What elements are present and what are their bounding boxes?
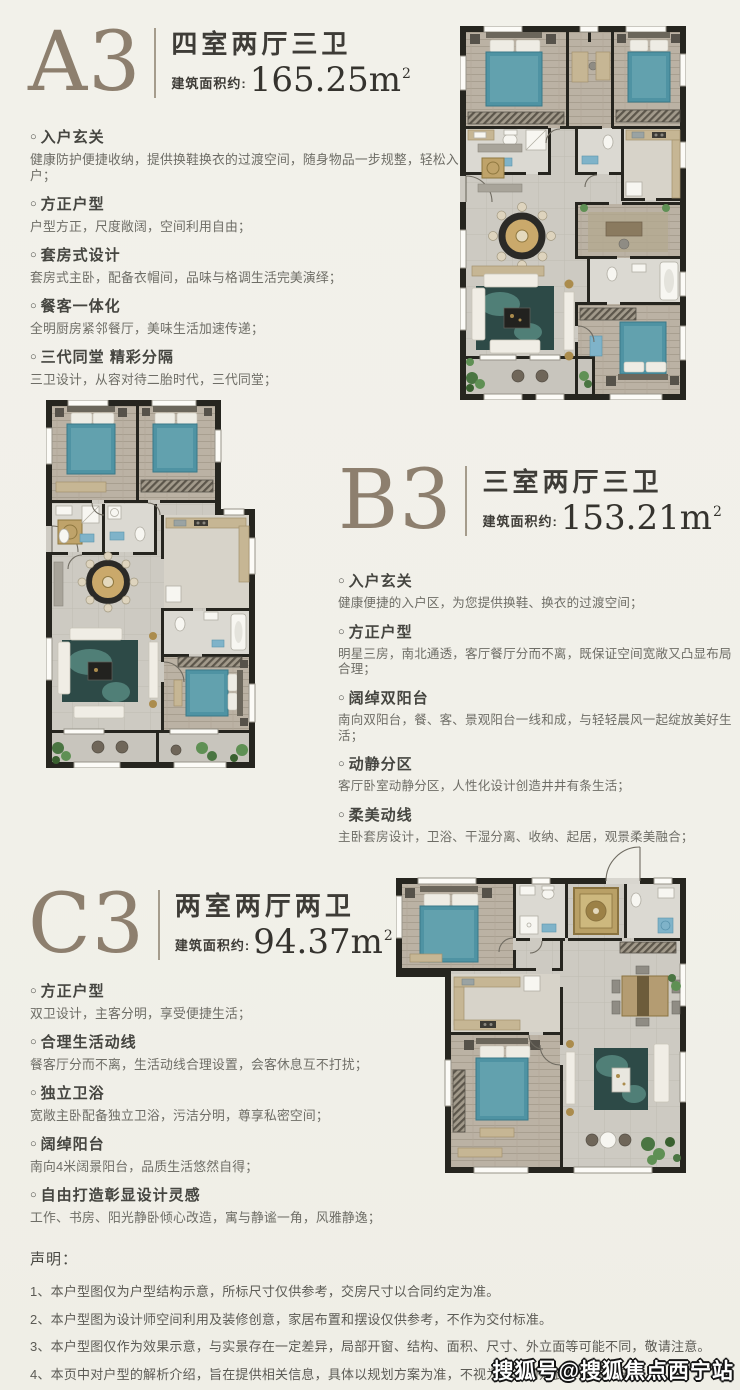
feature-item: ○阔绰双阳台 南向双阳台，餐、客、景观阳台一线和成，与轻轻晨风一起绽放美好生活； — [338, 687, 740, 744]
area-prefix-label: 建筑面积约: — [175, 935, 250, 958]
unit-a3-area: 建筑面积约: 165.25m 2 — [171, 65, 409, 96]
bullet-icon: ○ — [30, 300, 38, 312]
floorplan-b3-image — [46, 400, 258, 768]
area-superscript: 2 — [384, 928, 393, 944]
unit-c3-meta: 两室两厅两卫 建筑面积约: 94.37m 2 — [175, 892, 392, 958]
feature-title: ○自由打造彰显设计灵感 — [30, 1184, 450, 1205]
feature-desc: 南向4米阔景阳台，品质生活悠然自得； — [30, 1159, 450, 1175]
feature-item: ○餐客一体化 全明厨房紧邻餐厅，美味生活加速传递； — [30, 295, 460, 337]
feature-title-text: 阔绰双阳台 — [349, 690, 429, 707]
floorplan-c3-image — [396, 846, 686, 1176]
feature-desc: 套房式主卧，配备衣帽间，品味与格调生活完美演绎； — [30, 270, 460, 286]
bullet-icon: ○ — [30, 198, 38, 210]
feature-title-text: 餐客一体化 — [41, 298, 121, 315]
feature-title: ○方正户型 — [30, 193, 460, 214]
area-unit: m — [351, 922, 383, 962]
feature-title-text: 独立卫浴 — [41, 1085, 105, 1102]
bullet-icon: ○ — [30, 1189, 38, 1201]
header-divider — [154, 28, 156, 98]
feature-title-text: 套房式设计 — [41, 247, 121, 264]
unit-c3-letter: C3 — [28, 886, 145, 964]
unit-c3-area: 建筑面积约: 94.37m 2 — [175, 927, 392, 958]
feature-desc: 全明厨房紧邻餐厅，美味生活加速传递； — [30, 321, 460, 337]
feature-title: ○独立卫浴 — [30, 1082, 450, 1103]
feature-item: ○套房式设计 套房式主卧，配备衣帽间，品味与格调生活完美演绎； — [30, 244, 460, 286]
feature-item: ○三代同堂 精彩分隔 三卫设计，从容对待二胎时代，三代同堂； — [30, 346, 460, 388]
feature-desc: 户型方正，尺度敞阔，空间利用自由； — [30, 219, 460, 235]
feature-item: ○方正户型 户型方正，尺度敞阔，空间利用自由； — [30, 193, 460, 235]
feature-item: ○动静分区 客厅卧室动静分区，人性化设计创造井井有条生活； — [338, 753, 740, 795]
feature-title: ○阔绰双阳台 — [338, 687, 740, 708]
feature-desc: 健康便捷的入户区，为您提供换鞋、换衣的过渡空间； — [338, 596, 740, 612]
feature-title-text: 阔绰阳台 — [41, 1136, 105, 1153]
area-superscript: 2 — [713, 504, 722, 520]
disclaimer-item: 3、本户型图仅作为效果示意，与实景存在一定差异，局部开窗、结构、面积、尺寸、外立… — [30, 1339, 718, 1355]
unit-c3-header: C3 两室两厅两卫 建筑面积约: 94.37m 2 — [28, 886, 392, 964]
feature-title-text: 合理生活动线 — [41, 1034, 137, 1051]
feature-desc: 宽敞主卧配备独立卫浴，污洁分明，尊享私密空间； — [30, 1108, 450, 1124]
disclaimer-item: 2、本户型图为设计师空间利用及装修创意，家居布置和摆设仅供参考，不作为交付标准。 — [30, 1312, 718, 1328]
feature-title-text: 方正户型 — [41, 196, 105, 213]
feature-item: ○独立卫浴 宽敞主卧配备独立卫浴，污洁分明，尊享私密空间； — [30, 1082, 450, 1124]
feature-item: ○合理生活动线 餐客厅分而不离，生活动线合理设置，会客休息互不打扰； — [30, 1031, 450, 1073]
feature-title: ○柔美动线 — [338, 804, 740, 825]
bullet-icon: ○ — [30, 985, 38, 997]
bullet-icon: ○ — [30, 1087, 38, 1099]
disclaimer-item: 1、本户型图仅为户型结构示意，所标尺寸仅供参考，交房尺寸以合同约定为准。 — [30, 1284, 718, 1300]
header-divider — [158, 890, 160, 960]
feature-title: ○动静分区 — [338, 753, 740, 774]
unit-a3-meta: 四室两厅三卫 建筑面积约: 165.25m 2 — [171, 30, 409, 96]
bullet-icon: ○ — [30, 1036, 38, 1048]
area-number: 153.21 — [561, 498, 680, 538]
bullet-icon: ○ — [30, 249, 38, 261]
area-unit: m — [680, 498, 712, 538]
unit-b3-meta: 三室两厅三卫 建筑面积约: 153.21m 2 — [482, 468, 720, 534]
area-value: 165.25m — [250, 65, 401, 96]
feature-title: ○合理生活动线 — [30, 1031, 450, 1052]
feature-desc: 主卧套房设计，卫浴、干湿分离、收纳、起居，观景柔美融合； — [338, 830, 740, 846]
unit-b3-area: 建筑面积约: 153.21m 2 — [482, 503, 720, 534]
bullet-icon: ○ — [338, 626, 346, 638]
feature-title-text: 自由打造彰显设计灵感 — [41, 1187, 201, 1204]
bullet-icon: ○ — [338, 692, 346, 704]
header-divider — [465, 466, 467, 536]
area-value: 153.21m — [561, 503, 712, 534]
feature-item: ○自由打造彰显设计灵感 工作、书房、阳光静卧倾心改造，寓与静谧一角，风雅静逸； — [30, 1184, 450, 1226]
feature-desc: 南向双阳台，餐、客、景观阳台一线和成，与轻轻晨风一起绽放美好生活； — [338, 713, 740, 744]
c3-wardrobe — [620, 942, 676, 953]
feature-title-text: 方正户型 — [349, 624, 413, 641]
feature-title: ○三代同堂 精彩分隔 — [30, 346, 460, 367]
bullet-icon: ○ — [338, 809, 346, 821]
feature-desc: 餐客厅分而不离，生活动线合理设置，会客休息互不打扰； — [30, 1057, 450, 1073]
feature-item: ○方正户型 明星三房，南北通透，客厅餐厅分而不离，既保证空间宽敞又凸显布局合理； — [338, 621, 740, 678]
feature-title-text: 入户玄关 — [41, 129, 105, 146]
unit-b3-header: B3 三室两厅三卫 建筑面积约: 153.21m 2 — [338, 462, 721, 540]
feature-title-text: 方正户型 — [41, 983, 105, 1000]
feature-desc: 双卫设计，主客分明，享受便捷生活； — [30, 1006, 450, 1022]
feature-title-text: 入户玄关 — [349, 573, 413, 590]
feature-title: ○套房式设计 — [30, 244, 460, 265]
bullet-icon: ○ — [338, 758, 346, 770]
area-number: 165.25 — [250, 60, 369, 100]
area-prefix-label: 建筑面积约: — [171, 73, 246, 96]
bullet-icon: ○ — [30, 1138, 38, 1150]
feature-desc: 健康防护便捷收纳，提供换鞋换衣的过渡空间，随身物品一步规整，轻松入户； — [30, 152, 460, 184]
feature-desc: 明星三房，南北通透，客厅餐厅分而不离，既保证空间宽敞又凸显布局合理； — [338, 647, 740, 678]
unit-b3-layout-label: 三室两厅三卫 — [482, 468, 720, 497]
feature-title: ○方正户型 — [338, 621, 740, 642]
floorplan-brochure-page: A3 四室两厅三卫 建筑面积约: 165.25m 2 ○入户玄关 健康防护便捷收… — [0, 0, 740, 1390]
feature-item: ○柔美动线 主卧套房设计，卫浴、干湿分离、收纳、起居，观景柔美融合； — [338, 804, 740, 846]
unit-a3-header: A3 四室两厅三卫 建筑面积约: 165.25m 2 — [28, 24, 410, 102]
feature-title: ○入户玄关 — [30, 126, 460, 147]
area-superscript: 2 — [402, 66, 411, 82]
feature-title-text: 动静分区 — [349, 756, 413, 773]
feature-title: ○入户玄关 — [338, 570, 740, 591]
feature-item: ○入户玄关 健康便捷的入户区，为您提供换鞋、换衣的过渡空间； — [338, 570, 740, 612]
feature-item: ○方正户型 双卫设计，主客分明，享受便捷生活； — [30, 980, 450, 1022]
feature-item: ○阔绰阳台 南向4米阔景阳台，品质生活悠然自得； — [30, 1133, 450, 1175]
unit-c3-features: ○方正户型 双卫设计，主客分明，享受便捷生活； ○合理生活动线 餐客厅分而不离，… — [30, 980, 450, 1235]
unit-a3-layout-label: 四室两厅三卫 — [171, 30, 409, 59]
feature-title: ○阔绰阳台 — [30, 1133, 450, 1154]
unit-c3-layout-label: 两室两厅两卫 — [175, 892, 392, 921]
feature-desc: 三卫设计，从容对待二胎时代，三代同堂； — [30, 372, 460, 388]
feature-title-text: 柔美动线 — [349, 807, 413, 824]
bullet-icon: ○ — [338, 575, 346, 587]
unit-b3-letter: B3 — [338, 462, 452, 540]
feature-item: ○入户玄关 健康防护便捷收纳，提供换鞋换衣的过渡空间，随身物品一步规整，轻松入户… — [30, 126, 460, 184]
feature-desc: 工作、书房、阳光静卧倾心改造，寓与静谧一角，风雅静逸； — [30, 1210, 450, 1226]
feature-desc: 客厅卧室动静分区，人性化设计创造井井有条生活； — [338, 779, 740, 795]
area-unit: m — [369, 60, 401, 100]
bullet-icon: ○ — [30, 131, 38, 143]
area-prefix-label: 建筑面积约: — [482, 511, 557, 534]
feature-title: ○餐客一体化 — [30, 295, 460, 316]
watermark-text: 搜狐号@搜狐焦点西宁站 — [493, 1355, 734, 1385]
disclaimer-title: 声明： — [30, 1248, 718, 1269]
feature-title-text: 三代同堂 精彩分隔 — [41, 349, 174, 366]
bullet-icon: ○ — [30, 351, 38, 363]
area-number: 94.37 — [253, 922, 350, 962]
unit-b3-features: ○入户玄关 健康便捷的入户区，为您提供换鞋、换衣的过渡空间； ○方正户型 明星三… — [338, 570, 740, 854]
unit-a3-letter: A3 — [28, 24, 141, 102]
unit-a3-features: ○入户玄关 健康防护便捷收纳，提供换鞋换衣的过渡空间，随身物品一步规整，轻松入户… — [30, 126, 460, 397]
area-value: 94.37m — [253, 927, 383, 958]
feature-title: ○方正户型 — [30, 980, 450, 1001]
floorplan-a3-image — [460, 26, 686, 400]
